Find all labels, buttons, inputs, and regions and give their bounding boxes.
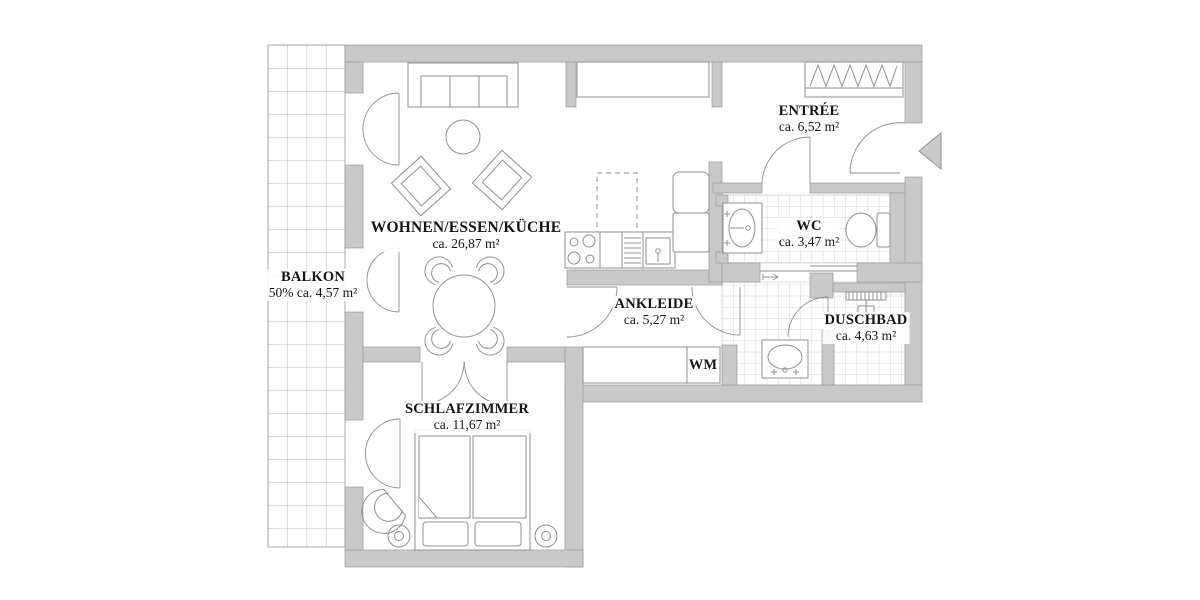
wall-left-c (345, 312, 363, 420)
bath-sink (762, 340, 808, 378)
wall-left-a (345, 62, 363, 93)
ankleide-wardrobe (583, 347, 687, 383)
wall-left-d (345, 487, 363, 550)
appliance-label: WM (689, 357, 718, 373)
dining-table (433, 275, 495, 337)
room-area: ca. 6,52 m² (779, 119, 840, 135)
dining-chair (419, 251, 455, 287)
wc-sink (723, 203, 762, 253)
double-bed (415, 430, 530, 550)
entrance-door (850, 123, 905, 173)
toilet (846, 213, 890, 247)
french-door-living-north (363, 93, 399, 165)
planned-furniture-dashed (597, 173, 637, 232)
room-label-ankleide: ANKLEIDE ca. 5,27 m² (613, 296, 696, 328)
coffee-table (446, 120, 480, 154)
entree-wardrobe (805, 62, 903, 97)
wall-entree-west-lower (709, 162, 722, 282)
lounge-chair (472, 150, 531, 209)
wall-column-bath (810, 273, 833, 298)
wall-shower-north (833, 283, 905, 292)
floor-plan-drawing (0, 0, 1200, 600)
wall-stub-kitchen-left (566, 62, 576, 107)
kitchen (565, 172, 709, 268)
wall-wc-north-right (810, 183, 905, 193)
wall-living-entree-upper (712, 62, 722, 107)
bedside-lamp (535, 525, 557, 547)
room-label-wc: WC ca. 3,47 m² (777, 218, 841, 250)
dining-chair (474, 251, 510, 287)
washing-machine-label: WM (687, 357, 720, 373)
room-area: ca. 26,87 m² (371, 236, 562, 252)
room-label-wohnen: WOHNEN/ESSEN/KÜCHE ca. 26,87 m² (369, 220, 564, 252)
sliding-door (760, 266, 857, 280)
wall-bedroom-north-west (363, 347, 420, 362)
door-wc (762, 137, 810, 185)
wall-wc-north-left (713, 183, 762, 193)
entrance-arrow (919, 133, 941, 169)
wall-top (345, 45, 922, 62)
room-area: ca. 3,47 m² (779, 234, 839, 250)
room-name: WC (779, 218, 839, 234)
fridge (673, 172, 709, 252)
wall-ankleide-east-stub (722, 345, 737, 385)
floor-plan: BALKON 50% ca. 4,57 m² WOHNEN/ESSEN/KÜCH… (0, 0, 1200, 600)
dining-chair (474, 325, 510, 361)
room-area: ca. 11,67 m² (405, 417, 529, 433)
sofa (408, 63, 518, 107)
room-name: ANKLEIDE (615, 296, 694, 312)
wall-bedroom-north-east (507, 347, 565, 362)
room-name: SCHLAFZIMMER (405, 401, 529, 417)
room-area: ca. 4,63 m² (825, 328, 908, 344)
room-label-duschbad: DUSCHBAD ca. 4,63 m² (823, 312, 910, 344)
room-label-balkon: BALKON 50% ca. 4,57 m² (267, 269, 359, 301)
lounge-chair (391, 156, 450, 215)
bedside-lamp (388, 525, 410, 547)
wall-kitchen-south (567, 270, 722, 285)
french-door-bedroom (366, 419, 401, 488)
wall-sliding-left (722, 263, 760, 282)
wall-pilaster-wc-bottom (716, 252, 728, 263)
bedroom-furniture (353, 430, 557, 550)
room-name: WOHNEN/ESSEN/KÜCHE (371, 220, 562, 236)
door-ankleide-west (567, 287, 617, 337)
room-name: BALKON (269, 269, 357, 285)
sideboard (577, 62, 709, 97)
wall-bedroom-east (565, 347, 583, 567)
room-label-entree: ENTRÉE ca. 6,52 m² (777, 103, 842, 135)
room-name: ENTRÉE (779, 103, 840, 119)
wall-sliding-right (857, 263, 922, 282)
room-name: DUSCHBAD (825, 312, 908, 328)
wall-right-upper (905, 62, 922, 123)
room-label-schlafzimmer: SCHLAFZIMMER ca. 11,67 m² (403, 401, 531, 433)
french-door-living-south (367, 248, 399, 312)
double-door-bedroom (422, 362, 507, 405)
wall-bedroom-bottom (345, 550, 583, 567)
room-area: ca. 5,27 m² (615, 312, 694, 328)
wall-bath-bottom (565, 385, 922, 402)
room-area: 50% ca. 4,57 m² (269, 285, 357, 301)
wall-left-b (345, 165, 363, 248)
dining-chair (419, 325, 455, 361)
kitchen-counter (565, 232, 675, 268)
